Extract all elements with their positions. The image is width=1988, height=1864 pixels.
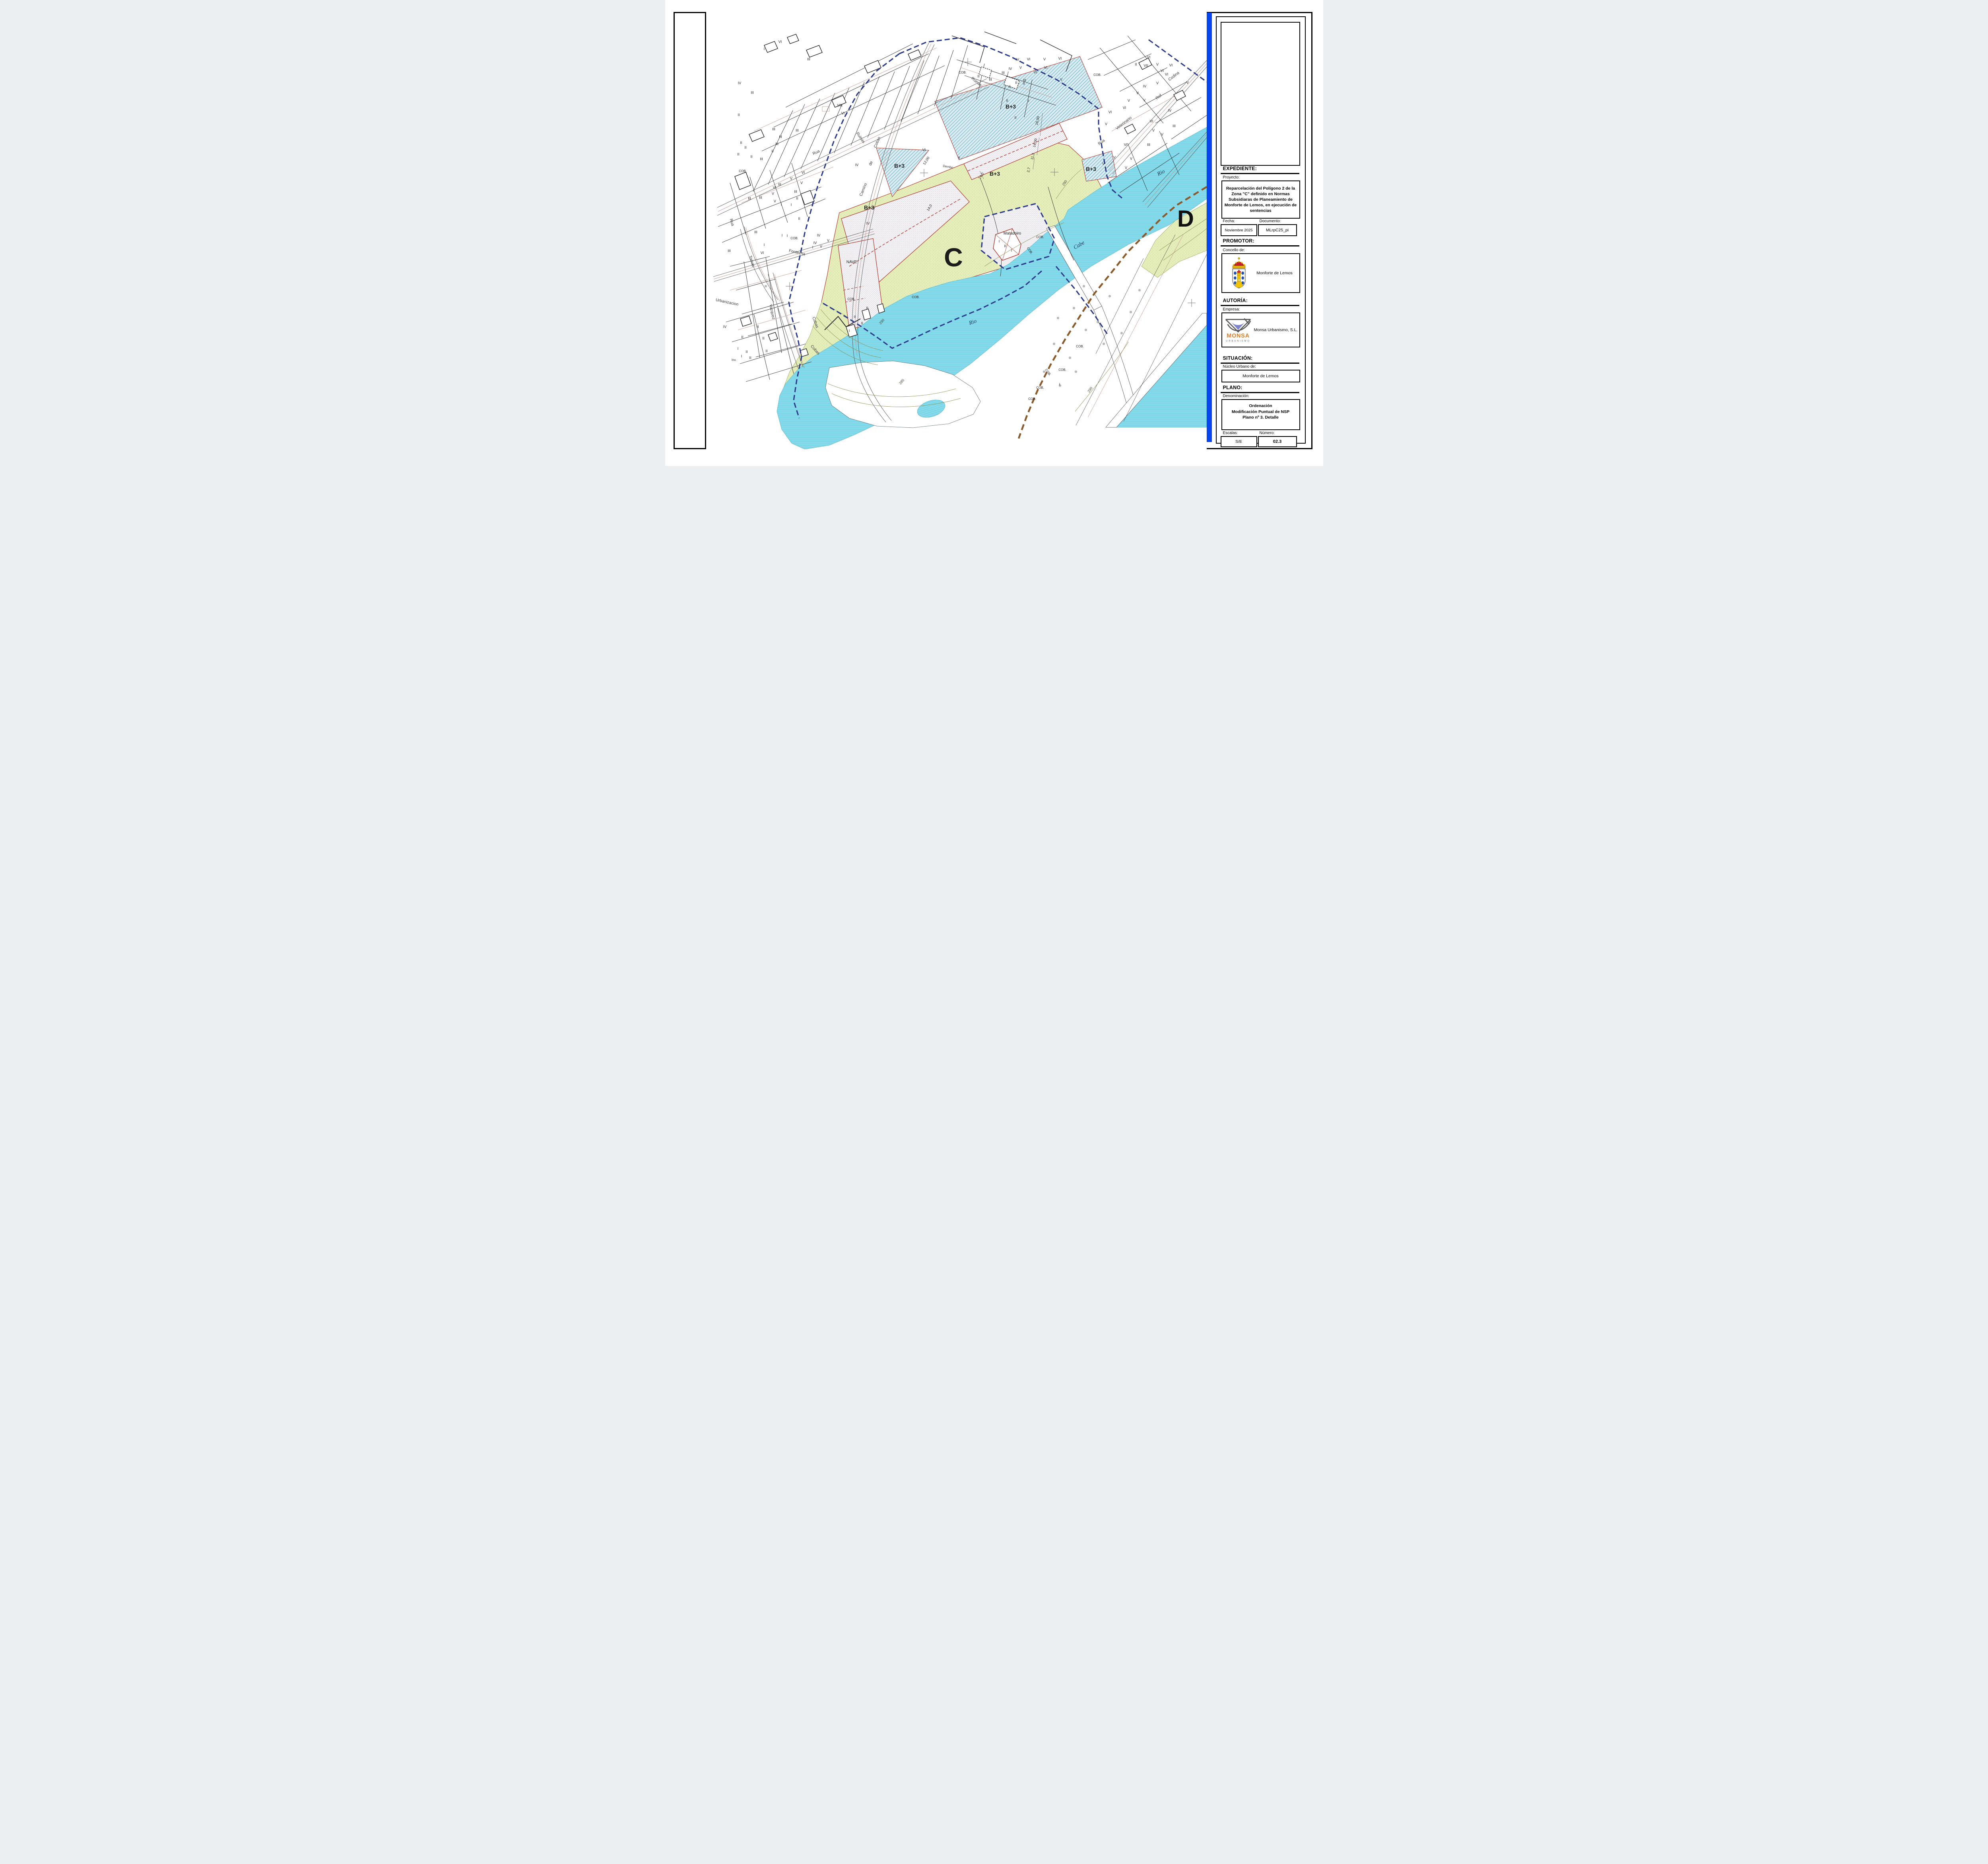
proyecto-label: Proyecto: (1223, 175, 1240, 180)
rule (1221, 392, 1299, 393)
map-label: VI (1044, 66, 1047, 70)
documento-box: MLrpC25_pi (1258, 224, 1297, 236)
documento-value: MLrpC25_pi (1266, 228, 1289, 233)
map-label: III (759, 196, 762, 200)
fecha-label: Fecha: (1223, 219, 1235, 223)
denominacion-line2: Modificación Puntual de NSP (1222, 409, 1299, 415)
map-label: III (1173, 124, 1176, 128)
map-label: V (773, 199, 776, 203)
map-label: IV (1168, 109, 1171, 112)
map-label: IV (813, 241, 817, 245)
map-label: Matadoiro (1003, 231, 1021, 236)
map-label: IV (1143, 84, 1146, 88)
map-label: I (786, 234, 788, 238)
map-label: V (1186, 81, 1188, 85)
project-title: Reparcelación del Polígono 2 de la Zona … (1222, 185, 1299, 215)
map-label: I (737, 347, 738, 351)
numero-label: Número: (1260, 431, 1275, 435)
map-label: II (744, 145, 746, 149)
map-label: IV (855, 163, 858, 167)
map-label: V (1105, 122, 1107, 126)
promotor-value: Monforte de Lemos (1250, 271, 1299, 275)
map-label: II (1015, 81, 1017, 85)
situacion-value: Monforte de Lemos (1242, 374, 1278, 378)
map-label: I (812, 245, 813, 249)
map-label: V (1102, 162, 1104, 166)
map-label: II (796, 196, 798, 200)
rule (1221, 245, 1299, 246)
map-label: I (848, 329, 850, 333)
map-label: VI (1124, 143, 1127, 147)
map-label: II (977, 74, 979, 78)
map-label: COB. (959, 71, 967, 74)
map-label: IV (738, 81, 741, 85)
map-label: VI (1165, 72, 1168, 76)
urban-plan-map: B+3B+3B+3B+3B+3CDNAVEMatadoiroDerriboRua… (706, 12, 1207, 449)
map-label: B+3 (989, 171, 1000, 177)
map-label: I (1059, 382, 1060, 386)
map-label: V (1156, 62, 1158, 66)
map-label: VI (1027, 57, 1030, 61)
map-label: IV (1015, 58, 1019, 62)
map-label: I (781, 233, 782, 237)
escalas-box: S/E (1221, 436, 1257, 447)
map-label: I (763, 243, 765, 247)
monsa-urbanismo-logo-icon: MONSA URBANISMO (1224, 316, 1252, 344)
map-label: B+3 (864, 204, 874, 211)
map-label: VI (922, 148, 926, 152)
map-label: COB. (1028, 397, 1036, 401)
map-label: II (1004, 244, 1006, 248)
map-label: IV (723, 325, 726, 329)
monsa-logo-text: MONSA (1227, 333, 1250, 339)
map-label: V (771, 192, 774, 196)
empresa-value: Monsa Urbanismo, S.L. (1252, 328, 1299, 332)
map-label: VI (1169, 63, 1173, 67)
map-label: VI (778, 40, 782, 44)
map-label: III (760, 157, 763, 161)
map-label: B+3 (1085, 166, 1096, 172)
map-label: V (827, 239, 829, 242)
map-label: NAVE (846, 260, 857, 264)
map-label: COB. (1036, 386, 1044, 390)
map-label: V (1161, 132, 1163, 136)
map-label: IV (866, 221, 870, 225)
map-label: II (745, 350, 747, 354)
project-title-box: Reparcelación del Polígono 2 de la Zona … (1221, 180, 1300, 219)
map-label: II (757, 325, 759, 329)
map-label: III (775, 142, 779, 146)
map-label: II (741, 335, 743, 339)
map-label: I (741, 354, 742, 358)
map-label: V (1130, 157, 1132, 161)
map-label: II (798, 217, 800, 221)
map-label: D (1177, 206, 1194, 232)
monforte-coat-of-arms-icon (1228, 256, 1250, 291)
nucleo-label: Núcleo Urbano de: (1223, 365, 1256, 369)
map-label: II (762, 336, 764, 340)
map-label: VI (841, 111, 845, 115)
map-label: II (765, 349, 767, 353)
escalas-value: S/E (1235, 439, 1242, 444)
title-block-empty-box (1221, 22, 1300, 166)
map-label: V (800, 181, 802, 185)
map-label: V (790, 177, 792, 180)
map-label: III (754, 230, 757, 234)
map-label: I (1011, 248, 1012, 252)
title-block: EXPEDIENTE: Proyecto: Reparcelación del … (1216, 16, 1306, 444)
map-label: II (861, 321, 863, 325)
map-label: COB. (1093, 73, 1101, 77)
map-label: V (1143, 98, 1145, 102)
map-label: II (740, 141, 742, 145)
map-label: III (772, 127, 775, 131)
map-label: B+3 (1005, 103, 1015, 110)
rule (1221, 173, 1299, 174)
blue-separator-bar (1207, 13, 1212, 442)
map-label: III (807, 57, 810, 61)
map-label: VIII (837, 103, 843, 107)
numero-value: 02.3 (1273, 439, 1281, 444)
map-label: II (737, 152, 739, 156)
map-label: V (1060, 78, 1062, 81)
map-label: VI (1147, 55, 1150, 59)
map-label: VI (1149, 119, 1153, 123)
map-label: II (1006, 99, 1008, 103)
map-label: COB. (847, 297, 855, 301)
map-label: II (1023, 81, 1025, 85)
map-label: II (1008, 85, 1010, 89)
map-label: V (819, 244, 822, 248)
map-label: VI (801, 171, 805, 175)
map-label: I (780, 202, 782, 206)
documento-label: Documento: (1260, 219, 1281, 223)
map-label: VI (1033, 70, 1037, 74)
map-label: IV (1008, 67, 1012, 71)
numero-box: 02.3 (1258, 436, 1297, 447)
map-label: I (998, 239, 1000, 243)
map-label: II (1135, 62, 1137, 66)
map-label: COB. (1036, 235, 1044, 239)
map-label: II (1014, 116, 1016, 120)
map-label: II (749, 356, 751, 360)
fecha-box: Noviembre 2025 (1221, 224, 1257, 236)
map-label: COB. (790, 237, 798, 240)
map-label: COB. (1076, 345, 1084, 348)
map-label: III (728, 249, 731, 253)
map-label: III (751, 91, 754, 95)
monsa-logo-subtext: URBANISMO (1226, 340, 1250, 343)
empresa-label: Empresa: (1223, 307, 1240, 312)
map-label: COB. (1058, 368, 1066, 372)
fecha-value: Noviembre 2025 (1225, 228, 1253, 233)
map-label: B+3 (894, 163, 904, 169)
map-label: IV (817, 233, 820, 237)
map-label: III (778, 182, 781, 186)
map-label: V (1152, 128, 1154, 132)
rule (1221, 305, 1299, 306)
map-label: II (854, 315, 856, 319)
map-label: V (1136, 91, 1138, 95)
map-label: III (989, 78, 992, 81)
map-label: VI (1122, 106, 1126, 110)
escalas-label: Escalas: (1223, 431, 1238, 435)
map-label: VI (1160, 69, 1164, 73)
map-label: COB. (912, 295, 920, 299)
rule (1221, 363, 1299, 364)
map-label: I (1028, 99, 1029, 103)
map-label: VII (1143, 64, 1148, 68)
map-label: COB. (739, 169, 747, 173)
map-label: II (958, 156, 960, 160)
expediente-heading: EXPEDIENTE: (1223, 166, 1257, 171)
denominacion-line3: Plano nº 3. Detalle (1222, 415, 1299, 421)
promotor-box: Monforte de Lemos (1221, 253, 1300, 293)
map-label: II (738, 113, 740, 117)
map-label: VI (1058, 56, 1062, 60)
plan-sheet: B+3B+3B+3B+3B+3CDNAVEMatadoiroDerriboRua… (665, 0, 1323, 466)
map-label: V (1124, 166, 1127, 170)
map-label: II (866, 306, 868, 310)
map-label: V (1156, 81, 1158, 85)
autoria-heading: AUTORÍA: (1223, 298, 1248, 303)
map-label: III (1147, 143, 1150, 147)
map-label: I (790, 203, 792, 207)
map-label: V (1127, 99, 1130, 103)
map-label: I (763, 47, 765, 51)
situacion-heading: SITUACIÓN: (1223, 355, 1253, 361)
map-label: III (748, 196, 751, 200)
map-label: III (794, 190, 797, 194)
map-label: III (779, 135, 782, 139)
concello-label: Concello de: (1223, 248, 1245, 252)
promotor-heading: PROMOTOR: (1223, 238, 1254, 244)
situacion-box: Monforte de Lemos (1221, 370, 1300, 382)
map-label: III (1002, 71, 1005, 75)
map-label: VI (773, 186, 776, 190)
map-label: Inv. (731, 358, 736, 362)
denominacion-label: Denominación: (1223, 394, 1250, 398)
map-label: VI (760, 251, 764, 255)
map-label: VI (1108, 110, 1112, 114)
denominacion-line1: Ordenación (1222, 403, 1299, 409)
empresa-box: MONSA URBANISMO Monsa Urbanismo, S.L. (1221, 312, 1300, 347)
plano-heading: PLANO: (1223, 385, 1242, 390)
denominacion-box: Ordenación Modificación Puntual de NSP P… (1221, 399, 1300, 430)
map-label: C (944, 242, 963, 272)
map-label: V (1113, 155, 1115, 159)
map-label: II (750, 155, 752, 159)
map-label: III (796, 128, 799, 132)
map-label: V (1019, 66, 1021, 70)
map-label: II (771, 149, 773, 153)
map-label: V (1043, 57, 1045, 61)
